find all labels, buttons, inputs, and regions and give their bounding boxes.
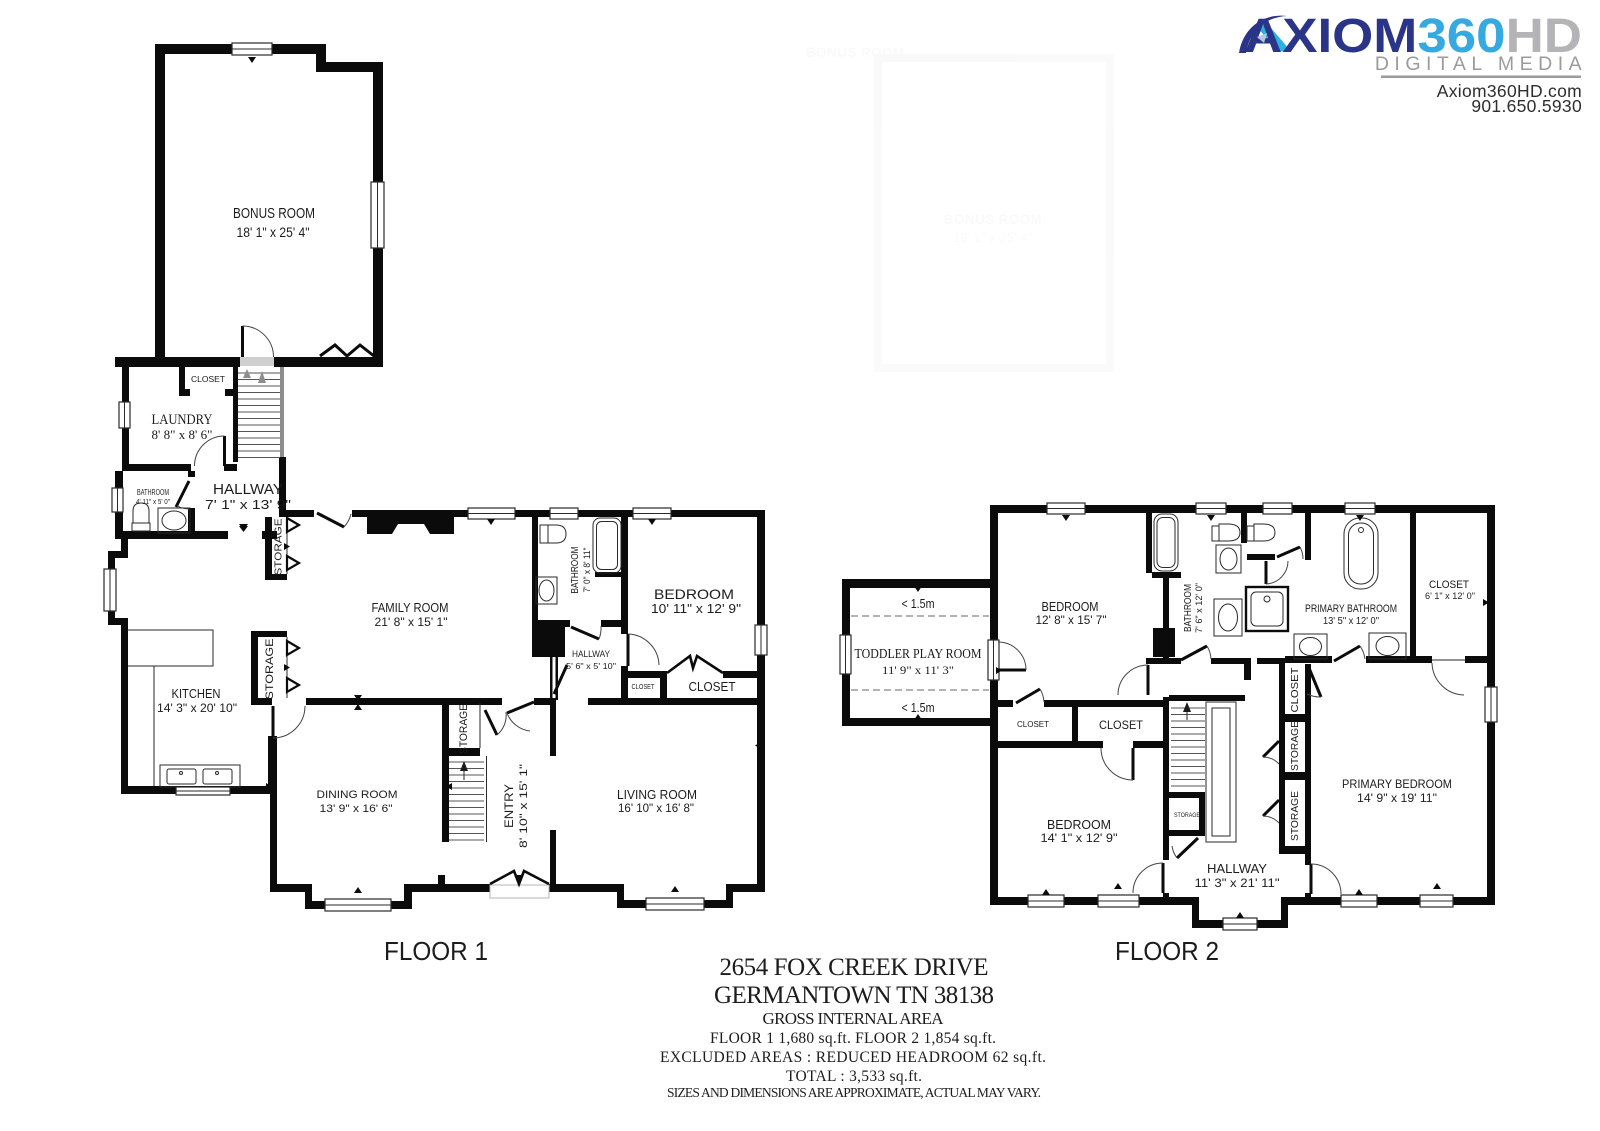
svg-text:12' 8" x 15' 7": 12' 8" x 15' 7" bbox=[1036, 615, 1107, 627]
svg-text:18' 1" x 25' 4": 18' 1" x 25' 4" bbox=[953, 231, 1033, 245]
svg-text:DIGITAL MEDIA: DIGITAL MEDIA bbox=[1375, 53, 1587, 75]
svg-text:CLOSET: CLOSET bbox=[632, 684, 656, 691]
svg-text:BATHROOM: BATHROOM bbox=[137, 488, 169, 497]
svg-text:BONUS ROOM: BONUS ROOM bbox=[944, 212, 1043, 227]
svg-text:LIVING ROOM: LIVING ROOM bbox=[617, 787, 697, 802]
svg-text:BATHROOM: BATHROOM bbox=[1183, 584, 1194, 632]
svg-text:STORAGE: STORAGE bbox=[458, 704, 470, 754]
svg-text:STORAGE: STORAGE bbox=[1290, 721, 1301, 771]
svg-text:CLOSET: CLOSET bbox=[1099, 720, 1143, 732]
svg-text:8' 8" x 8' 6": 8' 8" x 8' 6" bbox=[152, 428, 213, 442]
svg-text:< 1.5m: < 1.5m bbox=[902, 701, 935, 715]
svg-text:14' 3" x 20' 10": 14' 3" x 20' 10" bbox=[157, 701, 237, 715]
svg-text:FLOOR 2: FLOOR 2 bbox=[1115, 936, 1219, 966]
svg-text:BEDROOM: BEDROOM bbox=[654, 586, 734, 602]
svg-text:STORAGE: STORAGE bbox=[273, 519, 285, 576]
svg-text:HALLWAY: HALLWAY bbox=[1207, 862, 1268, 876]
svg-text:2654 FOX CREEK DRIVE: 2654 FOX CREEK DRIVE bbox=[720, 954, 989, 981]
svg-text:CLOSET: CLOSET bbox=[1290, 668, 1301, 713]
svg-text:7' 1" x 13' 9": 7' 1" x 13' 9" bbox=[205, 497, 291, 512]
svg-text:GROSS INTERNAL AREA: GROSS INTERNAL AREA bbox=[763, 1009, 945, 1028]
svg-text:CLOSET: CLOSET bbox=[1429, 579, 1469, 591]
svg-text:ENTRY: ENTRY bbox=[502, 784, 516, 828]
svg-text:STORAGE: STORAGE bbox=[1290, 791, 1301, 841]
svg-text:BEDROOM: BEDROOM bbox=[1047, 818, 1111, 832]
svg-text:11' 9" x 11' 3": 11' 9" x 11' 3" bbox=[882, 663, 954, 677]
svg-text:BATHROOM: BATHROOM bbox=[570, 547, 581, 594]
svg-text:14' 9" x 19' 11": 14' 9" x 19' 11" bbox=[1357, 793, 1437, 805]
svg-text:16' 10" x 16' 8": 16' 10" x 16' 8" bbox=[618, 801, 694, 815]
svg-text:FLOOR 1: FLOOR 1 bbox=[384, 936, 488, 966]
svg-text:6' 1" x 12' 0": 6' 1" x 12' 0" bbox=[1425, 591, 1475, 602]
svg-text:TOTAL : 3,533 sq.ft.: TOTAL : 3,533 sq.ft. bbox=[786, 1068, 922, 1085]
svg-text:HALLWAY: HALLWAY bbox=[572, 649, 610, 659]
svg-text:5' 6" x 5' 10": 5' 6" x 5' 10" bbox=[566, 661, 616, 671]
svg-text:HALLWAY: HALLWAY bbox=[213, 482, 283, 498]
svg-text:GERMANTOWN TN 38138: GERMANTOWN TN 38138 bbox=[714, 982, 994, 1009]
svg-text:STORAGE: STORAGE bbox=[1174, 812, 1201, 819]
svg-text:LAUNDRY: LAUNDRY bbox=[152, 412, 213, 428]
svg-text:PRIMARY BEDROOM: PRIMARY BEDROOM bbox=[1342, 777, 1452, 791]
svg-text:13' 9" x 16' 6": 13' 9" x 16' 6" bbox=[320, 803, 393, 815]
svg-text:DINING ROOM: DINING ROOM bbox=[317, 789, 398, 801]
svg-text:CLOSET: CLOSET bbox=[1017, 720, 1049, 729]
svg-text:7' 6" x 12' 0": 7' 6" x 12' 0" bbox=[1194, 583, 1204, 633]
svg-text:4' 11" x 5' 0": 4' 11" x 5' 0" bbox=[136, 497, 170, 506]
svg-text:7' 0" x 8' 11": 7' 0" x 8' 11" bbox=[582, 548, 592, 593]
svg-text:CLOSET: CLOSET bbox=[191, 375, 225, 384]
svg-text:BONUS ROOM: BONUS ROOM bbox=[233, 205, 315, 222]
svg-text:10' 11" x 12' 9": 10' 11" x 12' 9" bbox=[651, 601, 741, 616]
svg-text:STORAGE: STORAGE bbox=[264, 639, 276, 700]
svg-text:13' 5" x 12' 0": 13' 5" x 12' 0" bbox=[1323, 616, 1379, 627]
svg-text:901.650.5930: 901.650.5930 bbox=[1471, 96, 1582, 116]
svg-text:11' 3" x 21' 11": 11' 3" x 21' 11" bbox=[1195, 878, 1280, 890]
svg-text:21' 8" x 15' 1": 21' 8" x 15' 1" bbox=[375, 615, 448, 629]
svg-text:KITCHEN: KITCHEN bbox=[172, 687, 221, 701]
svg-text:14' 1" x 12' 9": 14' 1" x 12' 9" bbox=[1041, 833, 1118, 845]
svg-text:< 1.5m: < 1.5m bbox=[902, 597, 935, 611]
svg-text:8' 10" x 15' 1": 8' 10" x 15' 1" bbox=[518, 764, 530, 848]
svg-text:EXCLUDED AREAS : REDUCED HEADR: EXCLUDED AREAS : REDUCED HEADROOM 62 sq.… bbox=[660, 1049, 1046, 1066]
svg-text:PRIMARY BATHROOM: PRIMARY BATHROOM bbox=[1305, 603, 1397, 615]
svg-text:BEDROOM: BEDROOM bbox=[1042, 600, 1099, 614]
svg-text:FLOOR 1 1,680 sq.ft. FLOOR 2 1: FLOOR 1 1,680 sq.ft. FLOOR 2 1,854 sq.ft… bbox=[710, 1030, 996, 1047]
svg-text:CLOSET: CLOSET bbox=[689, 680, 736, 694]
svg-text:18' 1" x 25' 4": 18' 1" x 25' 4" bbox=[237, 225, 310, 240]
svg-text:TODDLER PLAY ROOM: TODDLER PLAY ROOM bbox=[855, 646, 982, 661]
svg-text:FAMILY ROOM: FAMILY ROOM bbox=[372, 601, 449, 615]
svg-text:SIZES AND DIMENSIONS ARE APPRO: SIZES AND DIMENSIONS ARE APPROXIMATE, AC… bbox=[667, 1085, 1041, 1100]
